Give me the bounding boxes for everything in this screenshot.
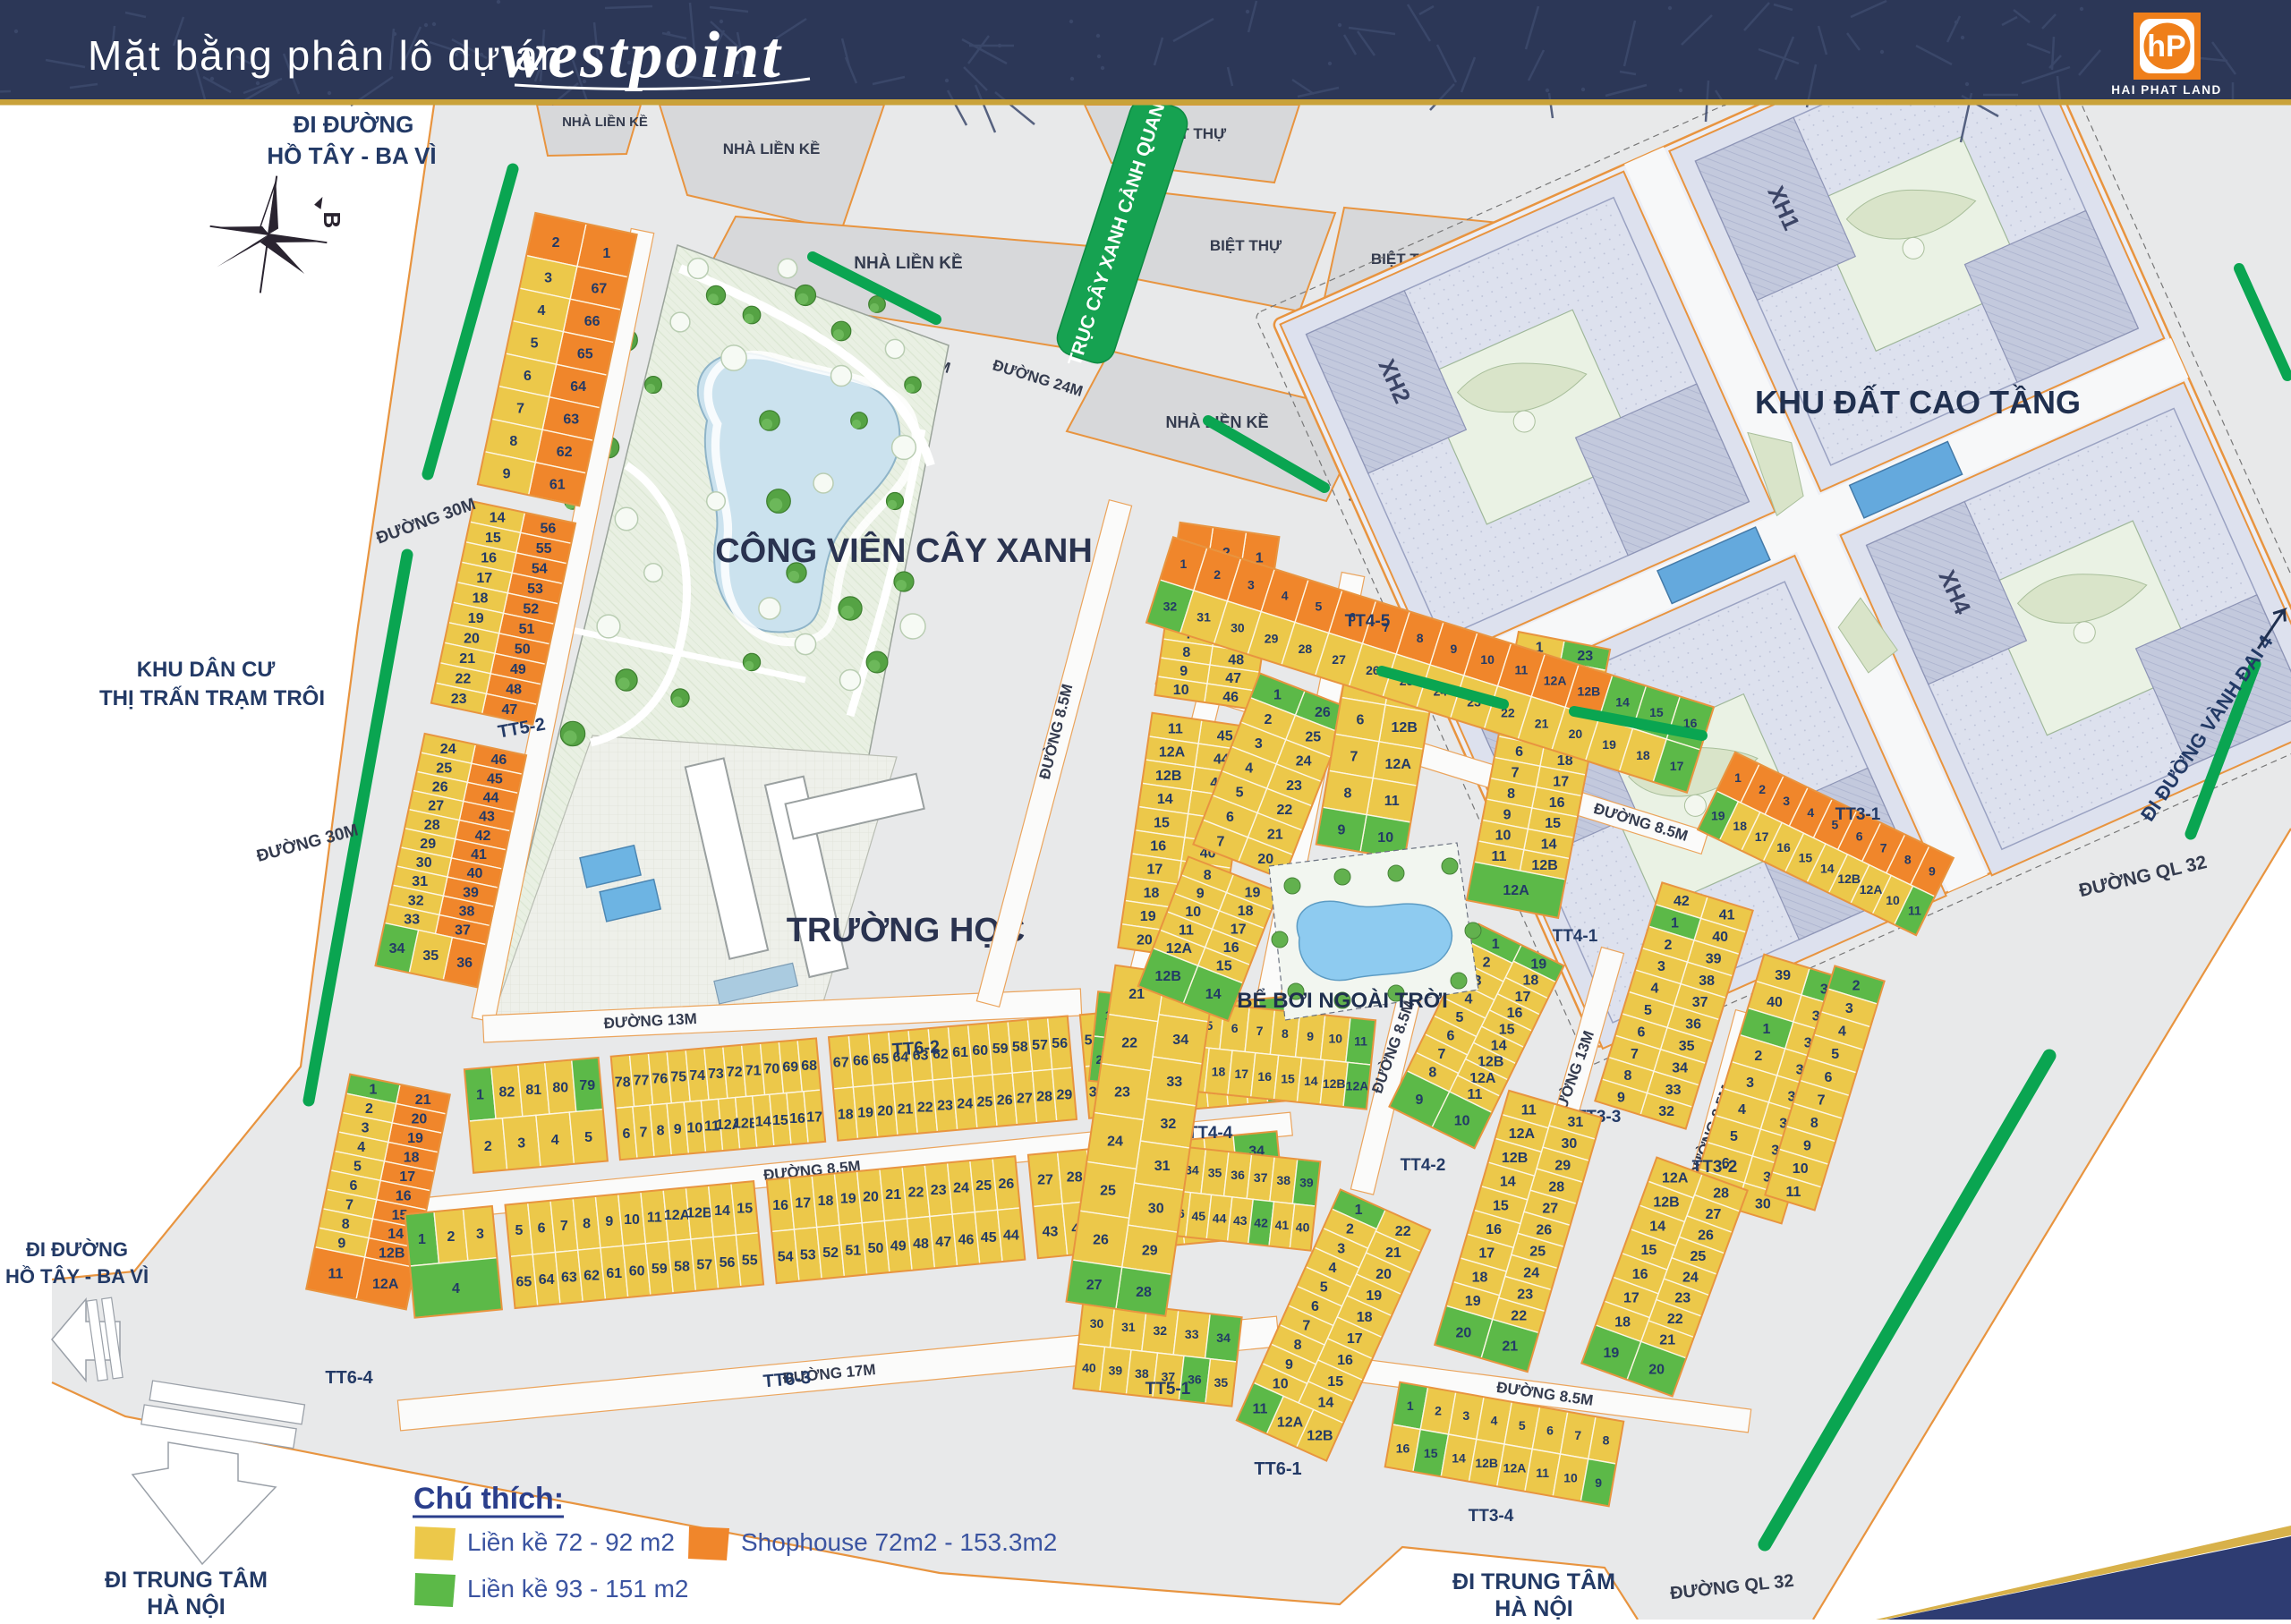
svg-text:23: 23 [1674, 1291, 1691, 1306]
svg-text:CÔNG VIÊN CÂY XANH: CÔNG VIÊN CÂY XANH [715, 530, 1093, 570]
svg-text:61: 61 [952, 1045, 968, 1060]
svg-text:KHU ĐẤT CAO TẦNG: KHU ĐẤT CAO TẦNG [1755, 384, 2081, 421]
svg-text:Shophouse 72m2 - 153.3m2: Shophouse 72m2 - 153.3m2 [741, 1528, 1057, 1556]
svg-text:17: 17 [1515, 990, 1531, 1005]
svg-text:54: 54 [532, 562, 548, 577]
svg-text:12A: 12A [1346, 1078, 1369, 1093]
svg-text:3: 3 [1746, 1076, 1754, 1091]
svg-text:3: 3 [1783, 794, 1790, 808]
svg-text:1: 1 [1407, 1399, 1414, 1413]
svg-text:9: 9 [1595, 1475, 1602, 1490]
svg-text:8: 8 [1603, 1433, 1610, 1448]
svg-text:6: 6 [1515, 744, 1523, 760]
svg-text:9: 9 [1451, 642, 1458, 656]
svg-text:22: 22 [1395, 1224, 1411, 1239]
svg-text:10: 10 [1329, 1032, 1343, 1046]
svg-text:19: 19 [407, 1131, 423, 1146]
svg-text:15: 15 [1216, 958, 1232, 974]
svg-text:19: 19 [1366, 1288, 1382, 1304]
svg-text:1: 1 [1355, 1203, 1363, 1218]
svg-text:25: 25 [975, 1178, 992, 1194]
svg-text:45: 45 [1192, 1209, 1206, 1223]
svg-text:39: 39 [463, 885, 479, 900]
svg-text:9: 9 [1929, 864, 1936, 879]
svg-text:4: 4 [1245, 761, 1253, 776]
svg-text:4: 4 [1328, 1261, 1336, 1276]
svg-text:10: 10 [1563, 1470, 1578, 1484]
svg-text:23: 23 [937, 1099, 953, 1114]
svg-text:11: 11 [1536, 1466, 1549, 1480]
svg-text:38: 38 [1699, 974, 1715, 989]
svg-text:41: 41 [1275, 1218, 1290, 1232]
svg-text:15: 15 [1545, 816, 1561, 831]
svg-text:22: 22 [908, 1186, 924, 1201]
svg-text:24: 24 [1107, 1135, 1123, 1150]
svg-text:19: 19 [468, 611, 484, 626]
svg-text:16: 16 [1776, 840, 1791, 855]
svg-text:27: 27 [1332, 652, 1346, 667]
svg-text:17: 17 [1553, 775, 1569, 790]
svg-text:9: 9 [337, 1236, 345, 1251]
svg-text:12B: 12B [1155, 769, 1181, 784]
svg-text:73: 73 [708, 1067, 724, 1082]
svg-text:61: 61 [606, 1266, 622, 1281]
svg-text:18: 18 [1357, 1310, 1373, 1325]
svg-text:28: 28 [1067, 1170, 1083, 1186]
svg-text:24: 24 [440, 742, 456, 757]
svg-text:8: 8 [1282, 1026, 1289, 1041]
svg-text:40: 40 [467, 866, 483, 881]
svg-text:29: 29 [420, 837, 436, 852]
svg-text:46: 46 [491, 752, 507, 768]
svg-text:25: 25 [1529, 1245, 1546, 1260]
svg-text:1: 1 [369, 1083, 377, 1098]
svg-text:23: 23 [931, 1183, 947, 1198]
svg-text:9: 9 [1617, 1091, 1625, 1106]
svg-text:50: 50 [515, 642, 531, 658]
svg-text:5: 5 [1236, 786, 1244, 801]
svg-text:51: 51 [519, 622, 535, 637]
svg-text:TT4-1: TT4-1 [1553, 927, 1598, 946]
svg-text:11: 11 [1253, 1402, 1268, 1417]
svg-text:3: 3 [1657, 959, 1665, 974]
svg-text:TRƯỜNG HỌC: TRƯỜNG HỌC [787, 910, 1026, 949]
svg-text:14: 14 [1157, 792, 1173, 807]
svg-text:7: 7 [1350, 750, 1358, 765]
svg-text:19: 19 [1245, 886, 1261, 901]
svg-text:72: 72 [727, 1065, 743, 1080]
svg-text:15: 15 [772, 1113, 788, 1128]
svg-text:15: 15 [1281, 1071, 1295, 1085]
svg-text:18: 18 [1472, 1270, 1488, 1285]
svg-text:28: 28 [1036, 1090, 1052, 1105]
svg-text:15: 15 [1493, 1198, 1509, 1213]
svg-text:6: 6 [1856, 829, 1863, 843]
svg-text:14: 14 [1318, 1396, 1334, 1411]
svg-text:10: 10 [1495, 829, 1512, 844]
svg-text:25: 25 [1691, 1249, 1707, 1264]
svg-text:7: 7 [345, 1197, 353, 1212]
svg-text:63: 63 [561, 1271, 577, 1286]
svg-text:35: 35 [1679, 1039, 1695, 1054]
svg-text:HÀ NỘI: HÀ NỘI [1495, 1594, 1573, 1620]
svg-text:20: 20 [1375, 1267, 1392, 1282]
svg-text:40: 40 [1296, 1220, 1310, 1235]
svg-text:7: 7 [1818, 1093, 1826, 1108]
svg-text:18: 18 [1212, 1064, 1226, 1078]
svg-text:20: 20 [1648, 1363, 1665, 1378]
svg-text:1: 1 [1180, 557, 1188, 571]
svg-text:TT5-1: TT5-1 [1145, 1380, 1191, 1399]
svg-text:7: 7 [640, 1125, 648, 1140]
svg-text:TT6-1: TT6-1 [1254, 1459, 1301, 1479]
svg-text:82: 82 [499, 1085, 515, 1101]
svg-text:60: 60 [629, 1264, 645, 1280]
svg-text:7: 7 [1256, 1024, 1264, 1038]
svg-text:11: 11 [1514, 663, 1528, 677]
svg-text:11: 11 [1384, 794, 1400, 809]
svg-text:12A: 12A [1159, 745, 1186, 761]
svg-text:32: 32 [408, 893, 424, 908]
svg-text:6: 6 [622, 1127, 630, 1142]
svg-text:8: 8 [1204, 868, 1212, 883]
svg-text:43: 43 [479, 810, 495, 825]
svg-text:31: 31 [1121, 1320, 1136, 1334]
svg-text:20: 20 [1137, 932, 1153, 948]
svg-text:16: 16 [1632, 1267, 1648, 1282]
svg-text:26: 26 [1315, 705, 1331, 720]
svg-text:47: 47 [1225, 671, 1241, 686]
svg-text:68: 68 [801, 1059, 817, 1074]
svg-text:14: 14 [755, 1115, 771, 1130]
svg-text:15: 15 [485, 531, 501, 546]
svg-text:16: 16 [1396, 1441, 1410, 1455]
svg-text:44: 44 [1213, 1211, 1227, 1225]
svg-text:17: 17 [1670, 759, 1684, 773]
svg-text:78: 78 [615, 1075, 631, 1090]
svg-text:19: 19 [1465, 1294, 1481, 1309]
svg-text:2: 2 [1664, 938, 1672, 953]
svg-text:31: 31 [412, 874, 428, 889]
svg-text:32: 32 [1154, 1323, 1168, 1338]
svg-text:12A: 12A [1544, 674, 1567, 688]
svg-text:25: 25 [1100, 1183, 1116, 1198]
svg-text:22: 22 [1511, 1309, 1527, 1324]
svg-text:30: 30 [1090, 1316, 1104, 1331]
svg-text:4: 4 [1650, 982, 1658, 997]
svg-text:62: 62 [557, 445, 573, 460]
svg-text:17: 17 [1235, 1067, 1249, 1081]
svg-text:15: 15 [1424, 1446, 1438, 1460]
svg-text:1: 1 [602, 246, 610, 261]
svg-text:8: 8 [342, 1217, 350, 1232]
svg-text:11: 11 [1492, 849, 1507, 864]
svg-text:10: 10 [1185, 905, 1201, 920]
svg-text:23: 23 [1577, 649, 1593, 664]
svg-text:25: 25 [977, 1095, 993, 1110]
svg-text:12B: 12B [1323, 1076, 1346, 1091]
svg-text:TT3-4: TT3-4 [1469, 1507, 1514, 1526]
svg-text:8: 8 [1182, 645, 1190, 660]
svg-text:20: 20 [1569, 727, 1583, 741]
svg-text:19: 19 [1604, 1346, 1620, 1361]
svg-text:26: 26 [1093, 1232, 1109, 1247]
svg-text:65: 65 [873, 1052, 889, 1067]
svg-text:16: 16 [396, 1188, 412, 1203]
svg-text:29: 29 [1142, 1243, 1158, 1258]
svg-text:ĐI TRUNG TÂM: ĐI TRUNG TÂM [1452, 1568, 1615, 1594]
svg-text:4: 4 [1838, 1025, 1846, 1040]
svg-text:19: 19 [1602, 737, 1616, 752]
svg-text:5: 5 [531, 336, 539, 352]
svg-text:14: 14 [1452, 1450, 1466, 1465]
svg-text:10: 10 [1273, 1376, 1289, 1391]
svg-text:49: 49 [510, 662, 526, 677]
svg-text:21: 21 [898, 1102, 914, 1118]
svg-text:1: 1 [1671, 915, 1679, 931]
svg-text:23: 23 [1286, 778, 1302, 794]
svg-text:11: 11 [1467, 1087, 1482, 1102]
svg-text:69: 69 [782, 1060, 798, 1076]
svg-text:59: 59 [992, 1042, 1009, 1057]
svg-text:19: 19 [1140, 909, 1156, 924]
svg-text:11: 11 [1521, 1102, 1537, 1118]
svg-text:9: 9 [503, 467, 511, 482]
svg-text:ĐI ĐƯỜNG: ĐI ĐƯỜNG [26, 1238, 128, 1261]
svg-text:80: 80 [552, 1080, 568, 1095]
svg-text:14: 14 [1820, 861, 1835, 875]
svg-text:56: 56 [1052, 1036, 1068, 1051]
svg-text:21: 21 [1267, 828, 1283, 843]
svg-text:39: 39 [1706, 951, 1722, 966]
svg-text:2: 2 [1435, 1404, 1442, 1418]
svg-text:7: 7 [1512, 766, 1520, 781]
svg-text:9: 9 [1337, 823, 1345, 838]
svg-text:16: 16 [1223, 940, 1239, 956]
svg-text:11: 11 [1354, 1034, 1367, 1049]
svg-text:27: 27 [1037, 1173, 1053, 1188]
svg-text:10: 10 [1886, 893, 1900, 907]
svg-text:NHÀ LIỀN KỀ: NHÀ LIỀN KỀ [723, 140, 821, 157]
svg-text:6: 6 [1446, 1029, 1454, 1044]
svg-text:12A: 12A [1277, 1416, 1304, 1431]
svg-text:7: 7 [1302, 1319, 1310, 1334]
svg-text:2: 2 [1264, 712, 1272, 727]
svg-text:70: 70 [764, 1062, 780, 1077]
svg-text:9: 9 [1285, 1357, 1293, 1373]
svg-text:18: 18 [473, 591, 489, 607]
svg-text:TT6-4: TT6-4 [325, 1368, 373, 1388]
svg-text:8: 8 [657, 1124, 665, 1139]
svg-text:14: 14 [388, 1227, 404, 1242]
svg-text:8: 8 [583, 1217, 591, 1232]
svg-text:34: 34 [1172, 1033, 1188, 1048]
svg-text:11: 11 [647, 1210, 662, 1225]
svg-text:24: 24 [953, 1181, 969, 1196]
svg-text:14: 14 [490, 511, 506, 526]
svg-text:2: 2 [484, 1139, 492, 1154]
svg-text:39: 39 [1109, 1364, 1123, 1378]
svg-text:55: 55 [536, 541, 552, 557]
svg-text:9: 9 [1197, 887, 1205, 902]
svg-text:11: 11 [328, 1266, 343, 1281]
svg-text:4: 4 [1491, 1414, 1498, 1428]
svg-text:10: 10 [1454, 1113, 1470, 1128]
svg-text:ĐI ĐƯỜNG: ĐI ĐƯỜNG [294, 111, 414, 138]
svg-text:12B: 12B [1502, 1151, 1528, 1166]
svg-text:30: 30 [1562, 1136, 1578, 1152]
svg-text:65: 65 [516, 1275, 532, 1290]
svg-text:16: 16 [1549, 795, 1565, 811]
svg-text:17: 17 [806, 1110, 822, 1126]
svg-text:BIỆT THỰ: BIỆT THỰ [1210, 237, 1282, 254]
svg-text:16: 16 [1486, 1222, 1502, 1237]
svg-text:8: 8 [1294, 1338, 1302, 1353]
svg-text:60: 60 [972, 1043, 988, 1059]
svg-text:37: 37 [455, 923, 471, 939]
svg-text:44: 44 [483, 791, 499, 806]
svg-text:8: 8 [1428, 1066, 1436, 1081]
svg-text:64: 64 [539, 1272, 555, 1288]
svg-text:2: 2 [365, 1101, 373, 1117]
svg-text:9: 9 [1503, 807, 1512, 822]
svg-text:24: 24 [1296, 754, 1312, 769]
svg-text:77: 77 [634, 1073, 650, 1088]
svg-text:11: 11 [1908, 904, 1921, 918]
svg-text:9: 9 [1307, 1029, 1314, 1043]
svg-text:3: 3 [1255, 736, 1263, 752]
svg-text:31: 31 [1197, 610, 1211, 625]
svg-text:55: 55 [742, 1254, 758, 1269]
svg-text:34: 34 [1216, 1331, 1231, 1345]
svg-text:12B: 12B [1653, 1195, 1679, 1211]
svg-text:Liền kề 93 - 151 m2: Liền kề 93 - 151 m2 [467, 1575, 689, 1603]
svg-text:Chú thích:: Chú thích: [413, 1482, 564, 1516]
svg-text:6: 6 [350, 1178, 358, 1194]
svg-text:7: 7 [1880, 841, 1887, 855]
svg-text:12A: 12A [1503, 883, 1529, 898]
svg-text:17: 17 [476, 571, 492, 586]
svg-text:51: 51 [845, 1243, 861, 1258]
svg-text:41: 41 [471, 847, 487, 863]
svg-text:2: 2 [552, 235, 560, 251]
svg-text:TT6-2: TT6-2 [891, 1037, 941, 1060]
svg-text:22: 22 [1121, 1036, 1137, 1051]
svg-text:44: 44 [1003, 1229, 1019, 1244]
svg-text:2: 2 [1754, 1049, 1762, 1064]
svg-text:9: 9 [1416, 1093, 1424, 1108]
svg-text:11: 11 [1179, 923, 1194, 938]
svg-text:42: 42 [1254, 1215, 1268, 1229]
svg-text:76: 76 [652, 1072, 669, 1087]
svg-text:28: 28 [1299, 642, 1313, 656]
svg-text:HÀ NỘI: HÀ NỘI [147, 1593, 226, 1620]
svg-text:1: 1 [1492, 937, 1500, 952]
svg-text:36: 36 [456, 956, 473, 971]
svg-text:2: 2 [1483, 956, 1491, 971]
svg-text:4: 4 [1807, 805, 1814, 820]
svg-text:12B: 12B [1578, 684, 1601, 699]
svg-text:32: 32 [1658, 1104, 1674, 1119]
svg-text:21: 21 [885, 1187, 901, 1203]
svg-text:2: 2 [1214, 567, 1221, 582]
svg-text:18: 18 [838, 1107, 854, 1122]
svg-text:27: 27 [1542, 1201, 1558, 1216]
svg-text:15: 15 [1649, 705, 1664, 719]
svg-text:32: 32 [1161, 1117, 1177, 1132]
svg-text:5: 5 [1519, 1418, 1526, 1433]
svg-text:38: 38 [1277, 1173, 1291, 1187]
svg-text:33: 33 [1166, 1075, 1182, 1090]
svg-text:15: 15 [1499, 1022, 1515, 1037]
svg-text:27: 27 [1017, 1092, 1033, 1107]
svg-text:9: 9 [1180, 664, 1188, 679]
svg-text:21: 21 [1502, 1339, 1518, 1354]
svg-text:10: 10 [1793, 1161, 1809, 1177]
svg-text:24: 24 [1682, 1270, 1699, 1285]
svg-text:20: 20 [1456, 1325, 1472, 1340]
svg-text:westpoint: westpoint [501, 19, 783, 92]
svg-text:24: 24 [957, 1097, 973, 1112]
svg-text:45: 45 [487, 771, 503, 786]
svg-text:12B: 12B [379, 1246, 405, 1262]
svg-text:3: 3 [1462, 1408, 1469, 1423]
svg-text:41: 41 [1719, 908, 1735, 923]
svg-text:40: 40 [1082, 1360, 1096, 1374]
svg-text:12A: 12A [1860, 882, 1883, 897]
svg-text:36: 36 [1231, 1168, 1245, 1182]
svg-text:16: 16 [1507, 1006, 1523, 1021]
svg-text:17: 17 [1623, 1291, 1639, 1306]
svg-text:2: 2 [1759, 782, 1766, 796]
svg-text:BỂ BƠI NGOÀI TRỜI: BỂ BƠI NGOÀI TRỜI [1237, 988, 1448, 1013]
svg-text:20: 20 [877, 1104, 893, 1119]
svg-text:4: 4 [551, 1133, 559, 1148]
svg-text:27: 27 [428, 799, 444, 814]
svg-text:6: 6 [538, 1220, 546, 1236]
svg-text:12A: 12A [1503, 1460, 1527, 1475]
svg-text:74: 74 [689, 1068, 705, 1084]
svg-text:22: 22 [456, 672, 472, 687]
svg-text:KHU DÂN CƯ: KHU DÂN CƯ [137, 657, 276, 682]
svg-text:34: 34 [1672, 1060, 1688, 1076]
svg-text:30: 30 [1231, 620, 1245, 634]
svg-text:14: 14 [1615, 694, 1630, 709]
svg-text:65: 65 [577, 347, 593, 362]
svg-text:7: 7 [1216, 834, 1224, 849]
svg-text:10: 10 [1377, 830, 1393, 846]
svg-text:35: 35 [422, 948, 439, 964]
svg-text:2: 2 [1346, 1222, 1354, 1237]
svg-text:3: 3 [1845, 1001, 1853, 1016]
svg-text:3: 3 [544, 271, 552, 286]
svg-text:56: 56 [541, 522, 557, 537]
svg-text:8: 8 [1810, 1116, 1818, 1131]
svg-text:17: 17 [1147, 863, 1163, 878]
svg-text:45: 45 [1217, 729, 1233, 744]
svg-text:ĐI TRUNG TÂM: ĐI TRUNG TÂM [105, 1566, 268, 1593]
svg-text:18: 18 [1523, 974, 1539, 989]
svg-text:14: 14 [1500, 1175, 1516, 1190]
svg-text:9: 9 [605, 1214, 613, 1229]
svg-text:3: 3 [362, 1121, 370, 1136]
svg-text:14: 14 [1541, 838, 1557, 853]
svg-text:18: 18 [1614, 1314, 1631, 1330]
svg-text:79: 79 [579, 1078, 595, 1093]
svg-text:21: 21 [1535, 716, 1549, 730]
svg-text:12B: 12B [1307, 1429, 1333, 1444]
svg-text:29: 29 [1554, 1158, 1571, 1173]
